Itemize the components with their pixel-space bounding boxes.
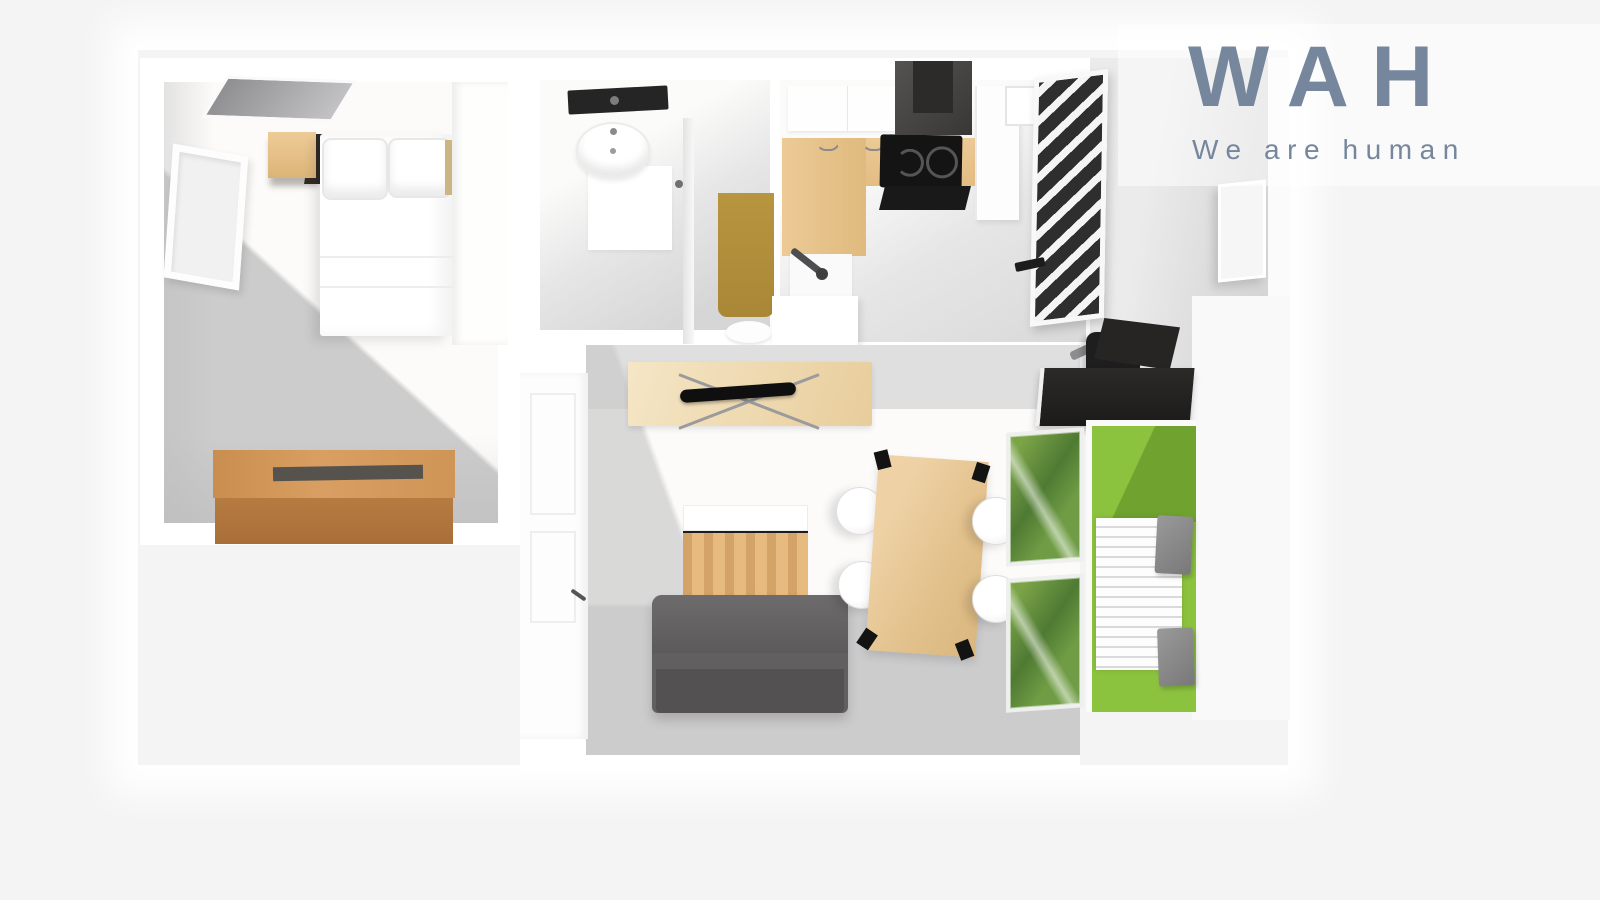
coffee-table [683,505,808,593]
balcony [1086,420,1196,712]
glass-pane [1006,573,1084,712]
outdoor-chair [1155,515,1194,575]
oven-front [879,186,971,210]
sofa [652,595,848,713]
desk [1035,368,1194,426]
coffee-table-front [683,531,808,595]
bathroom-divider-wall [683,118,694,344]
sofa-backrest [652,595,848,653]
washbasin [576,122,650,178]
pillow [322,138,388,200]
lawn-shade [1092,426,1196,522]
headboard-shelf [268,132,316,178]
room-bathroom [520,58,776,345]
outdoor-chair [1157,627,1195,686]
wooden-chest [213,450,455,544]
shower-tray [588,166,672,250]
range-hood [895,61,972,135]
bedroom-window [164,144,249,291]
brand-logo: WAH [1188,34,1598,120]
upper-cabinets [788,86,905,131]
bathroom-door-knob [675,180,683,188]
basin-faucet [610,128,617,135]
room-living [520,345,1080,770]
door-panel [530,531,576,623]
burner-ring [896,149,924,177]
brand-tagline: We are human [1192,134,1600,166]
floorplan-scene: WAH We are human [0,0,1600,900]
toilet [726,321,772,343]
coffee-table-top [683,505,808,531]
tall-wooden-cabinet [718,193,774,317]
glass-doors [1006,427,1084,716]
flat-tv [680,382,797,403]
blanket-fold [320,256,452,258]
sink-faucet-head [816,268,828,280]
basin-drain [610,148,616,154]
hood-chimney [913,61,953,113]
wardrobe [452,82,508,345]
door-panel [530,393,576,515]
glass-pane [1006,427,1084,566]
bedroom-wall-tv-panel [202,76,358,123]
shower-stem [610,96,619,105]
blanket-fold [320,286,452,288]
right-wall-window [1218,179,1266,282]
pillow [388,138,452,198]
entrance-door [520,373,588,739]
burner-ring [926,146,959,179]
exterior-white-wall [1192,296,1290,720]
dining-table [865,454,988,657]
counter-left-arm [782,138,866,256]
tv-sideboard [628,362,872,426]
room-bedroom [140,58,520,545]
sofa-seat [656,669,844,713]
induction-cooktop [880,134,963,188]
chest-front [215,498,453,544]
desk-unit [1028,318,1192,428]
cabinet-seam [847,86,848,131]
chest-slab [273,465,423,482]
double-bed [320,134,452,336]
loft-ladder [1030,69,1108,327]
